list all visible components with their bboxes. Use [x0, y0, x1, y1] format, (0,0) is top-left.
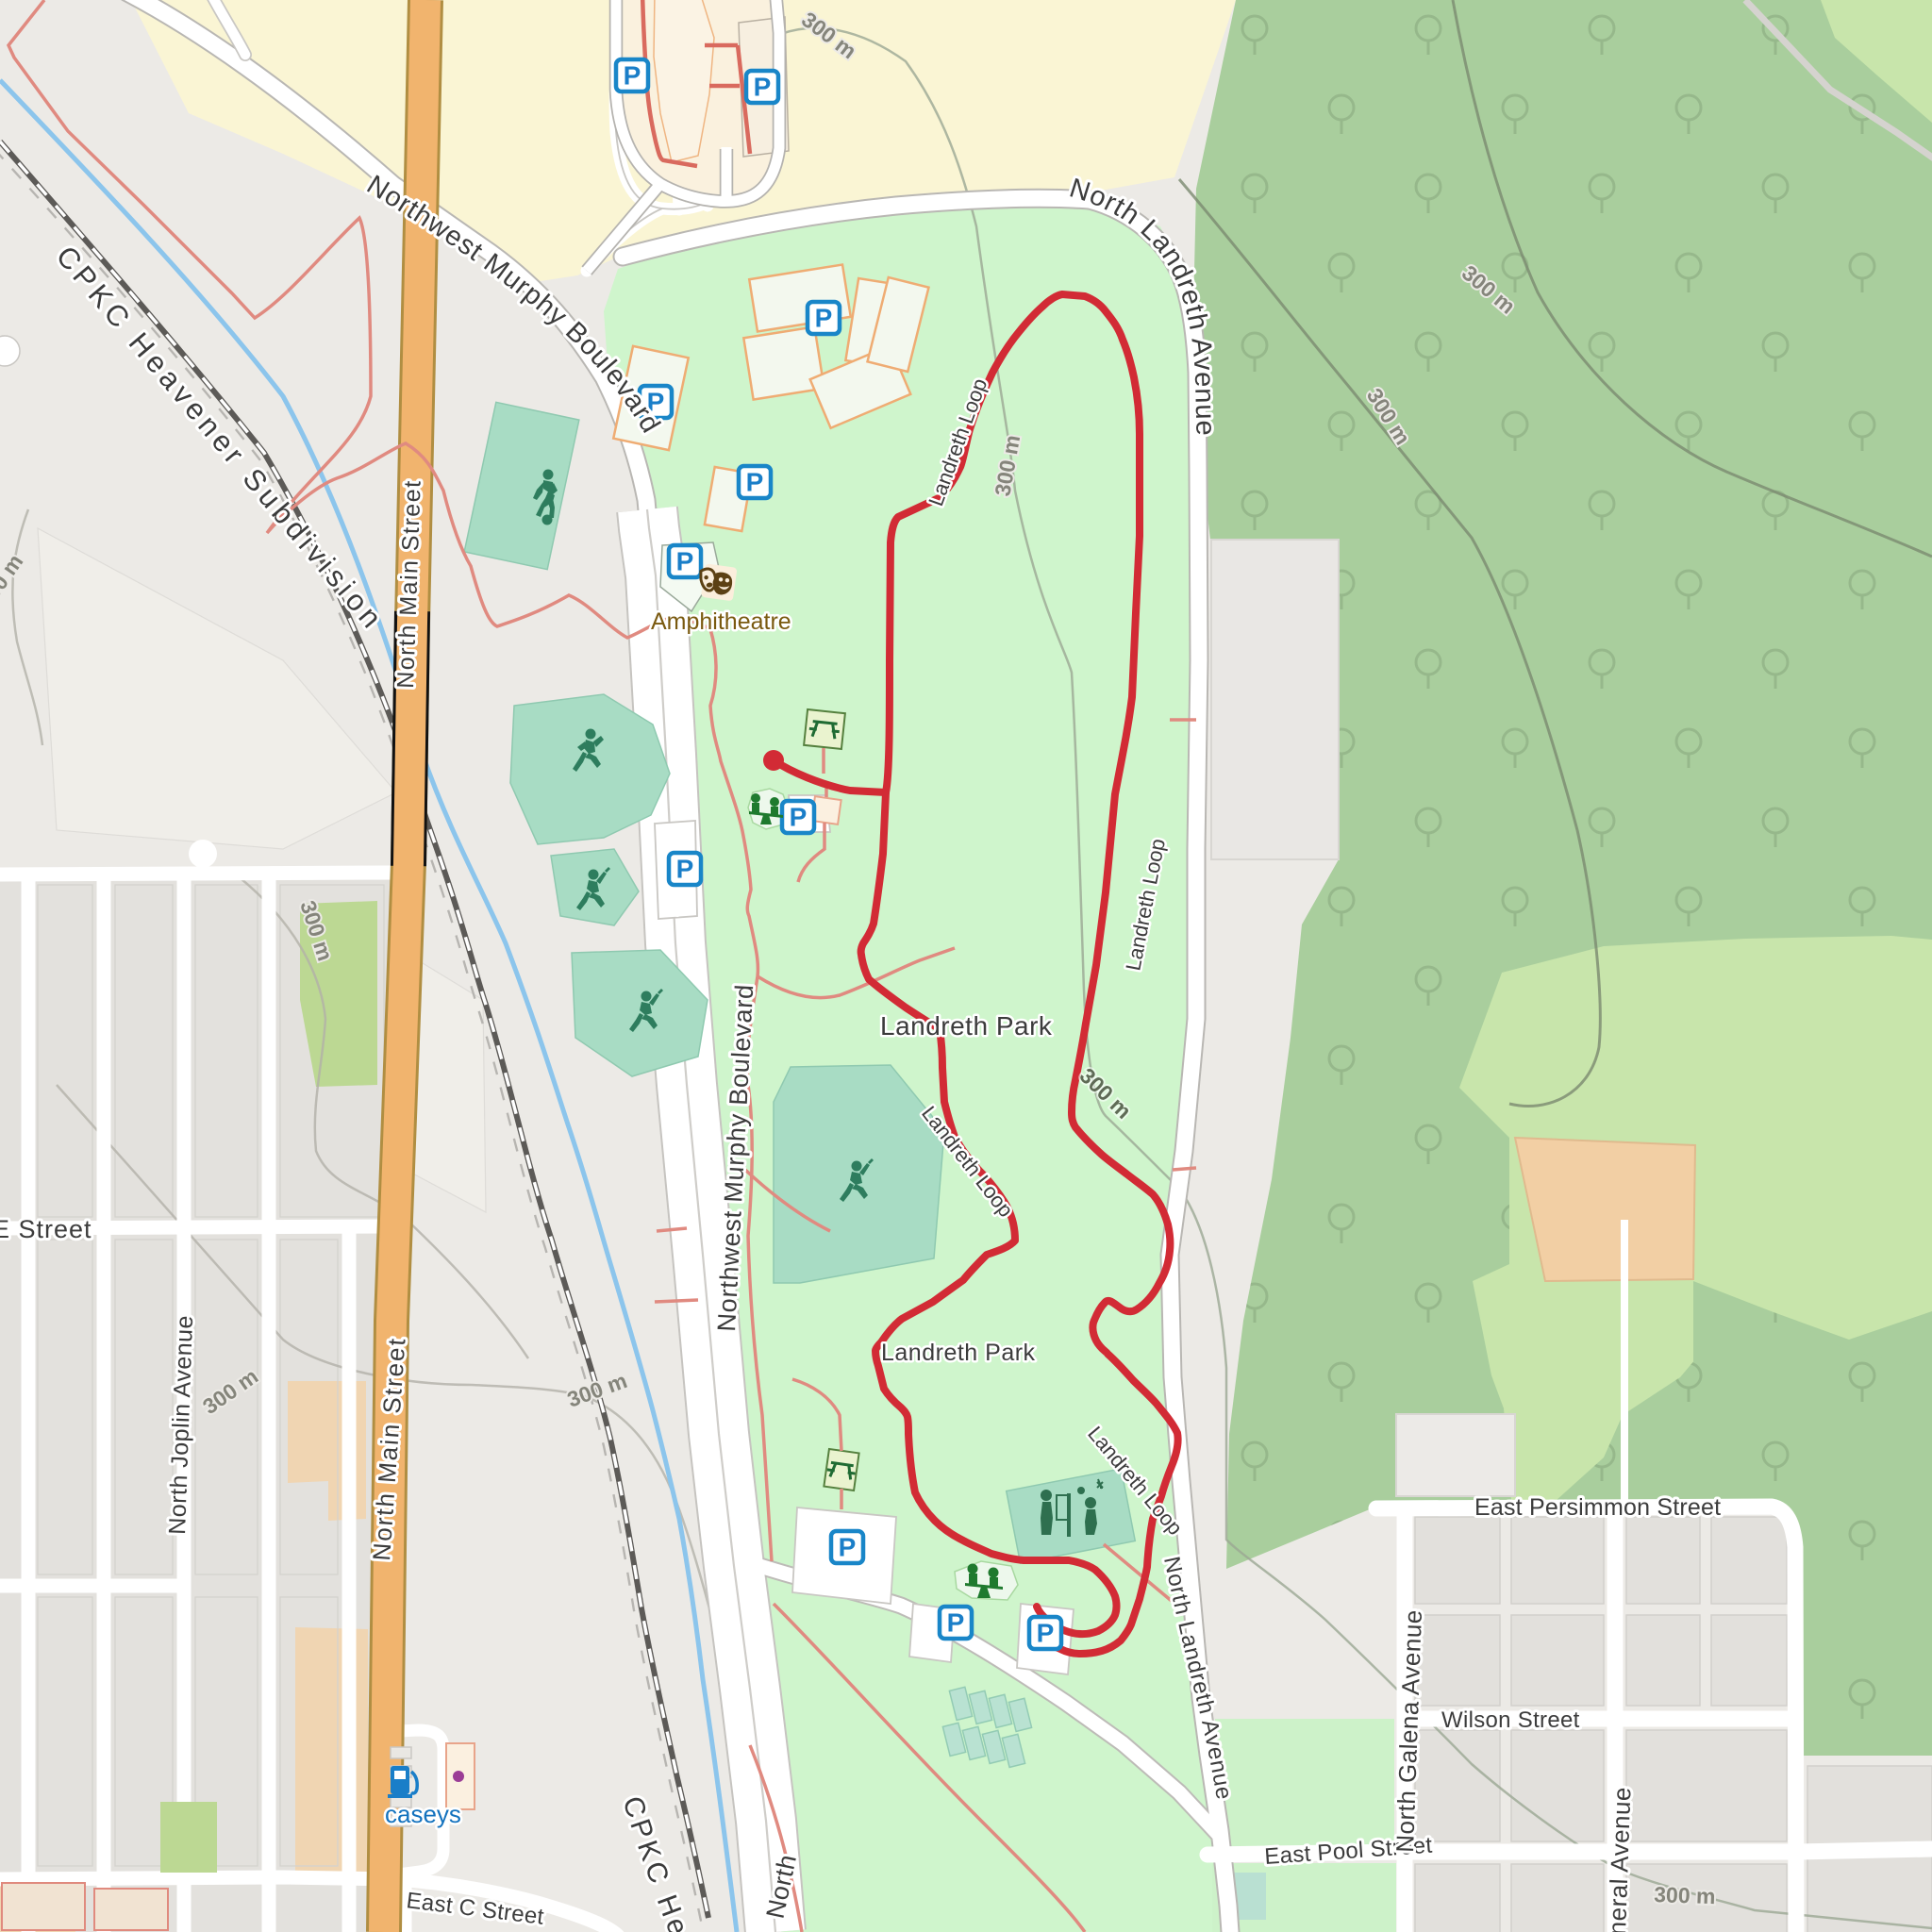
svg-text:Landreth Park: Landreth Park	[881, 1340, 1036, 1366]
svg-text:P: P	[624, 61, 641, 91]
svg-text:Landreth Park: Landreth Park	[880, 1011, 1053, 1041]
svg-text:P: P	[754, 73, 772, 102]
svg-text:P: P	[947, 1608, 965, 1638]
svg-text:P: P	[790, 803, 808, 832]
svg-text:P: P	[746, 468, 764, 497]
svg-text:Mineral Avenue: Mineral Avenue	[1602, 1787, 1636, 1932]
svg-text:P: P	[676, 547, 694, 576]
svg-text:Amphitheatre: Amphitheatre	[651, 608, 791, 635]
svg-text:caseys: caseys	[385, 1800, 461, 1828]
svg-text:P: P	[676, 855, 694, 884]
svg-text:300 m: 300 m	[1654, 1882, 1716, 1908]
svg-text:Wilson Street: Wilson Street	[1441, 1707, 1580, 1733]
svg-text:P: P	[815, 304, 833, 333]
svg-text:P: P	[839, 1533, 857, 1562]
svg-text:East Persimmon Street: East Persimmon Street	[1474, 1494, 1721, 1521]
svg-text:E Street: E Street	[0, 1215, 92, 1243]
svg-text:P: P	[1037, 1619, 1055, 1648]
